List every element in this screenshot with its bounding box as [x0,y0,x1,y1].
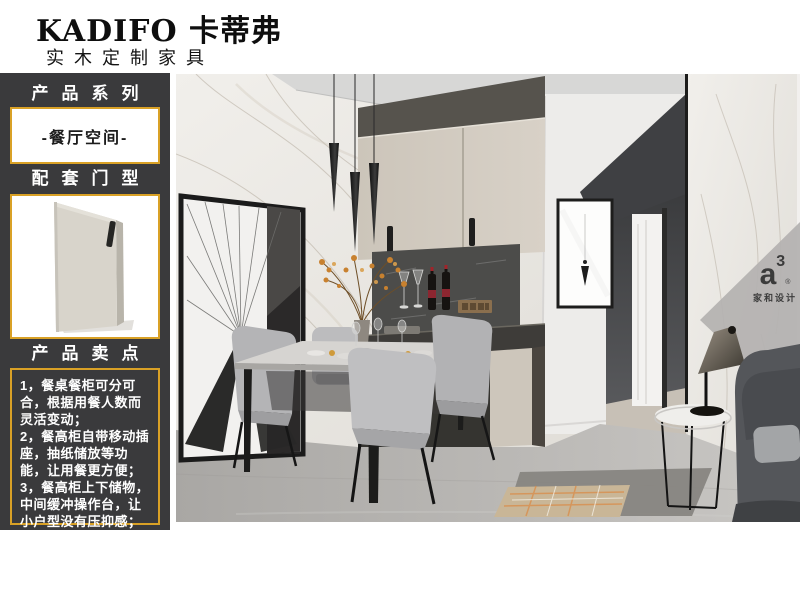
watermark-letter: a [760,258,777,291]
sidebar: 产品系列 -餐厅空间- 配套门型 产品卖点 1，餐桌餐柜可分可合，根据用餐人数而… [0,73,170,530]
selling-points-box: 1，餐桌餐柜可分可合，根据用餐人数而灵活变动； 2，餐高柜自带移动插座，抽纸储放… [10,368,160,525]
upper-cabinet-doors [358,118,545,260]
section-title-selling-points: 产品卖点 [0,343,170,365]
area-rug [494,468,712,517]
watermark-exponent: 3 [776,253,785,270]
section-title-product-series: 产品系列 [0,83,170,105]
watermark-caption: 家和设计 [751,294,799,303]
cabinet-handle-right [469,218,475,246]
sofa [732,344,800,522]
door-panel-image [12,196,158,337]
catalog-page: KADIFO 卡蒂弗 实木定制家具 产品系列 -餐厅空间- 配套门型 产品卖点 … [0,0,800,600]
registered-mark-icon: ® [785,279,790,286]
interior-photo: a3® 家和设计 [176,74,800,522]
product-series-value: -餐厅空间- [42,124,129,148]
cabinet-side-panel [532,346,545,447]
selling-point-3: 3，餐高柜上下储物，中间缓冲操作台，让小户型没有压抑感； [20,479,152,530]
brand-tagline: 实木定制家具 [46,44,214,70]
interior-scene [176,74,800,522]
product-series-box: -餐厅空间- [10,107,160,164]
lower-cabinet-door [490,348,532,447]
door-type-box [10,194,160,339]
selling-point-1: 1，餐桌餐柜可分可合，根据用餐人数而灵活变动； [20,377,152,428]
selling-point-2: 2，餐高柜自带移动插座，抽纸储放等功能，让用餐更方便； [20,428,152,479]
cabinet-handle-left [387,226,393,254]
plaid-blanket [494,485,630,517]
partition-edge [685,74,688,432]
section-title-door-type: 配套门型 [0,168,170,190]
wall-artwork [558,200,612,307]
designer-watermark: a3® 家和设计 [751,254,799,303]
